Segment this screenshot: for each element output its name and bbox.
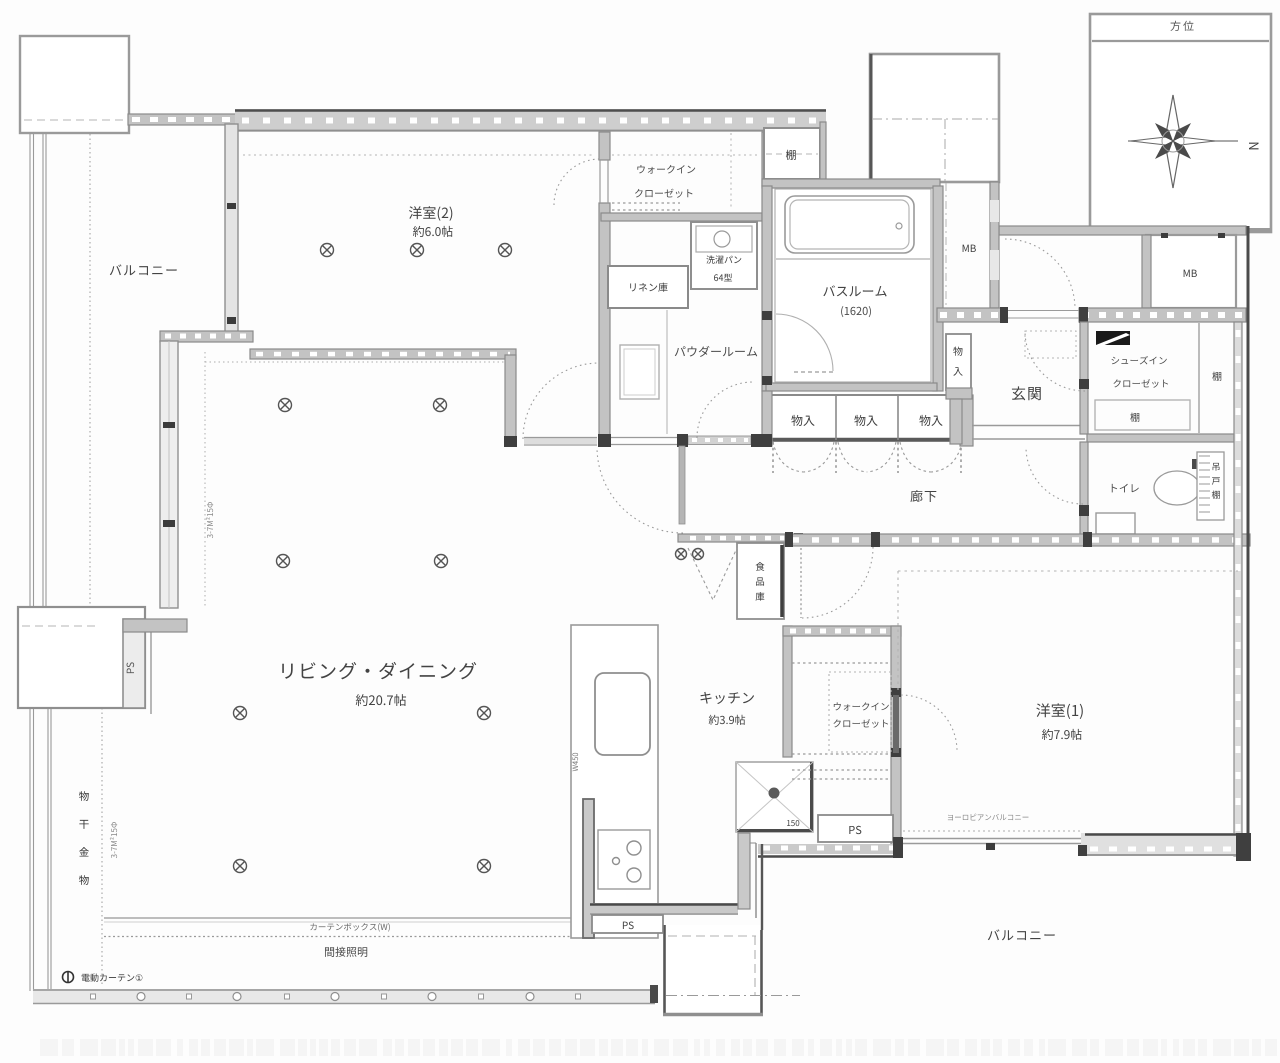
svg-text:吊: 吊 [1211,460,1220,473]
svg-text:庫: 庫 [755,589,765,603]
svg-text:バスルーム: バスルーム [822,281,887,300]
svg-text:約7.9帖: 約7.9帖 [1042,726,1083,743]
svg-text:リネン庫: リネン庫 [628,279,668,294]
svg-text:洗濯パン: 洗濯パン [706,253,742,266]
svg-text:物: 物 [79,873,90,888]
svg-text:シューズイン: シューズイン [1110,353,1167,367]
svg-text:物入: 物入 [854,412,878,429]
svg-text:リビング・ダイニング: リビング・ダイニング [278,657,478,684]
svg-text:洋室(2): 洋室(2) [408,203,453,223]
svg-text:W450: W450 [570,752,581,771]
svg-text:電動カーテン①: 電動カーテン① [81,971,143,984]
svg-text:戸: 戸 [1211,474,1220,487]
svg-text:64型: 64型 [714,271,733,284]
svg-text:(1620): (1620) [840,303,872,319]
svg-text:廊下: 廊下 [910,486,938,505]
svg-text:約6.0帖: 約6.0帖 [413,223,454,240]
svg-text:3-7M²15Φ: 3-7M²15Φ [109,822,120,859]
svg-text:ヨーロピアンバルコニー: ヨーロピアンバルコニー [947,812,1030,823]
svg-text:ウォークイン: ウォークイン [636,161,696,176]
svg-text:ウォークイン: ウォークイン [832,699,889,713]
svg-text:パウダールーム: パウダールーム [674,343,758,360]
svg-text:PS: PS [622,917,634,932]
svg-text:3-7M²15Φ: 3-7M²15Φ [205,502,216,539]
svg-text:洋室(1): 洋室(1) [1036,700,1084,721]
svg-text:約3.9帖: 約3.9帖 [708,712,745,728]
svg-text:方位: 方位 [1170,18,1196,34]
svg-text:PS: PS [122,662,137,674]
svg-text:物: 物 [79,789,90,804]
svg-text:PS: PS [848,822,862,838]
svg-text:食: 食 [755,559,765,573]
svg-text:棚: 棚 [1212,368,1222,383]
svg-text:トイレ: トイレ [1108,481,1140,496]
svg-text:約20.7帖: 約20.7帖 [355,690,406,709]
svg-text:クローゼット: クローゼット [832,716,889,730]
svg-text:バルコニー: バルコニー [987,925,1057,944]
svg-text:クローゼット: クローゼット [634,185,694,200]
svg-text:物入: 物入 [919,412,943,429]
svg-text:金: 金 [79,845,90,860]
svg-text:干: 干 [79,817,90,832]
svg-text:品: 品 [755,574,765,588]
svg-text:入: 入 [953,363,963,378]
svg-text:棚: 棚 [786,147,797,163]
svg-text:玄関: 玄関 [1011,383,1043,404]
svg-text:棚: 棚 [1130,409,1140,424]
svg-text:クローゼット: クローゼット [1112,376,1169,390]
svg-text:棚: 棚 [1211,488,1220,501]
svg-text:バルコニー: バルコニー [109,260,179,279]
svg-text:物: 物 [953,343,963,358]
svg-text:カーテンボックス(W): カーテンボックス(W) [309,921,390,933]
svg-text:物入: 物入 [791,412,815,429]
svg-text:150: 150 [786,818,800,829]
svg-text:間接照明: 間接照明 [324,944,368,960]
svg-text:MB: MB [1183,265,1198,280]
svg-text:MB: MB [962,240,977,255]
svg-text:N: N [1245,141,1264,150]
svg-text:キッチン: キッチン [699,688,755,708]
